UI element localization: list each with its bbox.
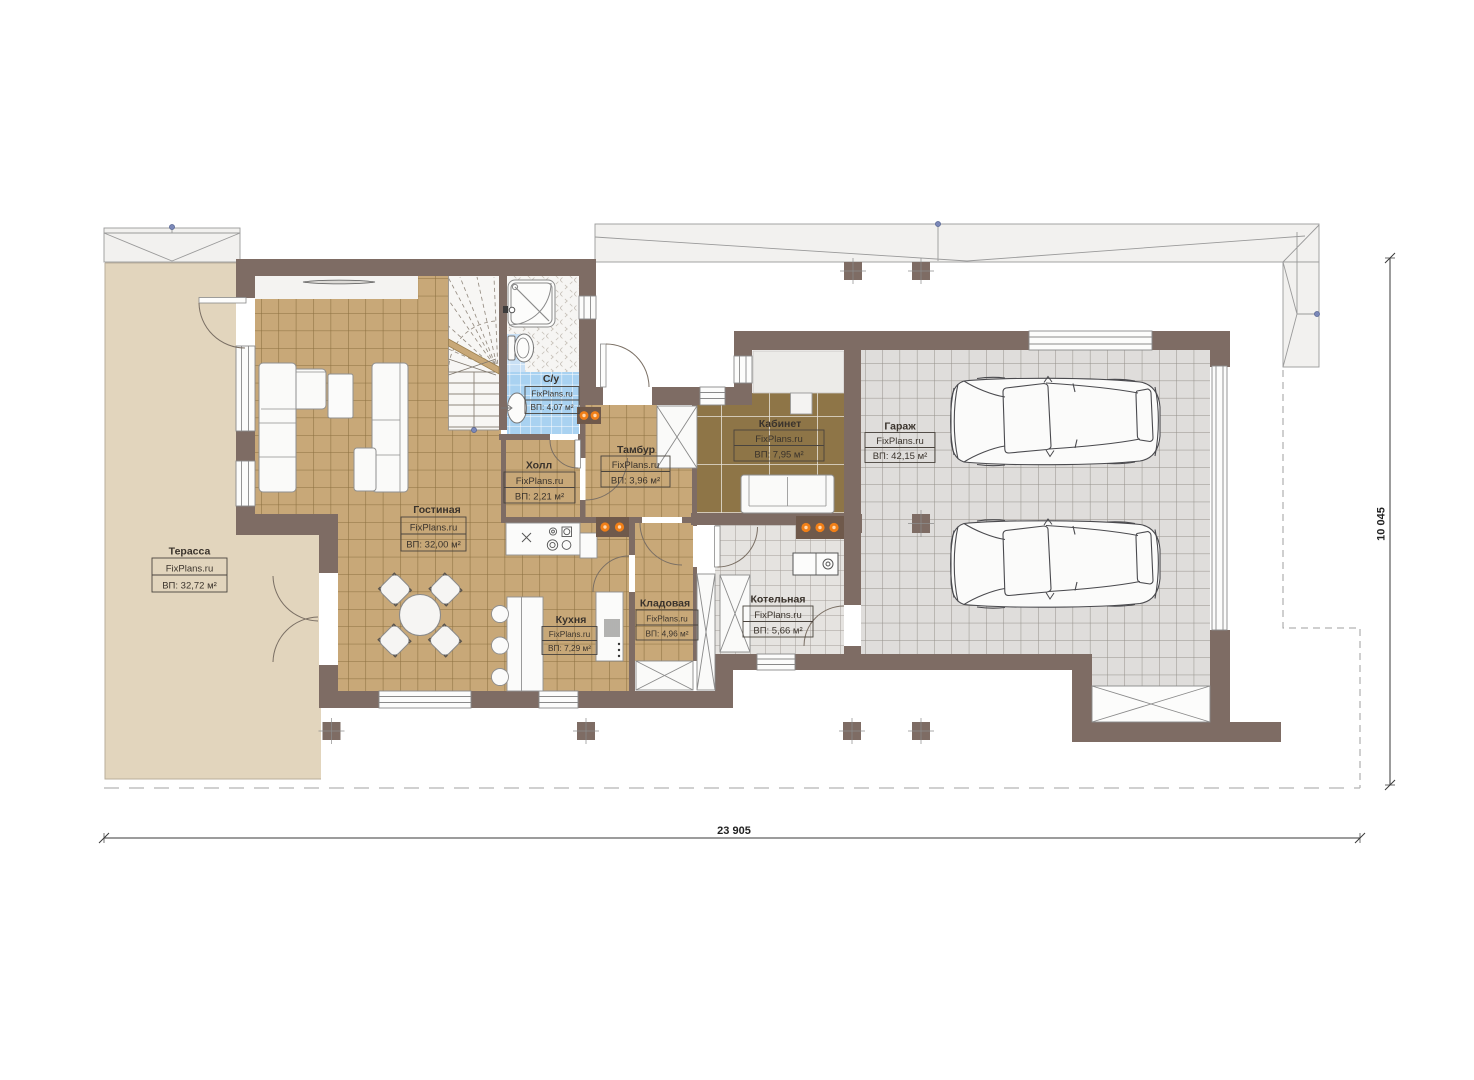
- svg-text:FixPlans.ru: FixPlans.ru: [549, 629, 591, 639]
- svg-text:FixPlans.ru: FixPlans.ru: [531, 389, 573, 399]
- svg-text:Гараж: Гараж: [884, 421, 916, 433]
- svg-text:Терасса: Терасса: [169, 546, 211, 558]
- svg-text:ВП: 4,96 м²: ВП: 4,96 м²: [645, 629, 688, 639]
- svg-text:FixPlans.ru: FixPlans.ru: [754, 610, 802, 621]
- svg-text:ВП: 4,07 м²: ВП: 4,07 м²: [530, 402, 573, 412]
- svg-text:ВП: 7,29 м²: ВП: 7,29 м²: [548, 643, 591, 653]
- svg-text:FixPlans.ru: FixPlans.ru: [166, 564, 214, 575]
- svg-text:Кладовая: Кладовая: [640, 598, 690, 610]
- svg-text:ВП: 5,66 м²: ВП: 5,66 м²: [753, 626, 802, 637]
- svg-text:Кабинет: Кабинет: [759, 418, 802, 430]
- svg-text:ВП: 32,72 м²: ВП: 32,72 м²: [162, 581, 217, 592]
- svg-text:FixPlans.ru: FixPlans.ru: [410, 523, 458, 534]
- svg-text:FixPlans.ru: FixPlans.ru: [876, 436, 924, 447]
- svg-text:10 045: 10 045: [1376, 507, 1388, 541]
- svg-text:С/у: С/у: [543, 373, 560, 385]
- svg-text:FixPlans.ru: FixPlans.ru: [516, 476, 564, 487]
- svg-text:Тамбур: Тамбур: [617, 444, 655, 456]
- svg-text:ВП: 32,00 м²: ВП: 32,00 м²: [406, 540, 461, 551]
- svg-text:FixPlans.ru: FixPlans.ru: [612, 460, 660, 471]
- svg-text:23 905: 23 905: [717, 825, 751, 837]
- svg-text:ВП: 42,15 м²: ВП: 42,15 м²: [873, 451, 928, 462]
- svg-text:ВП: 2,21 м²: ВП: 2,21 м²: [515, 492, 564, 503]
- svg-text:Кухня: Кухня: [556, 614, 587, 626]
- svg-text:FixPlans.ru: FixPlans.ru: [755, 434, 803, 445]
- svg-text:ВП: 3,96 м²: ВП: 3,96 м²: [611, 476, 660, 487]
- svg-text:Котельная: Котельная: [751, 594, 806, 606]
- svg-text:Гостиная: Гостиная: [413, 504, 460, 516]
- svg-text:Холл: Холл: [526, 460, 552, 472]
- svg-text:ВП: 7,95 м²: ВП: 7,95 м²: [754, 450, 803, 461]
- svg-text:FixPlans.ru: FixPlans.ru: [646, 614, 688, 624]
